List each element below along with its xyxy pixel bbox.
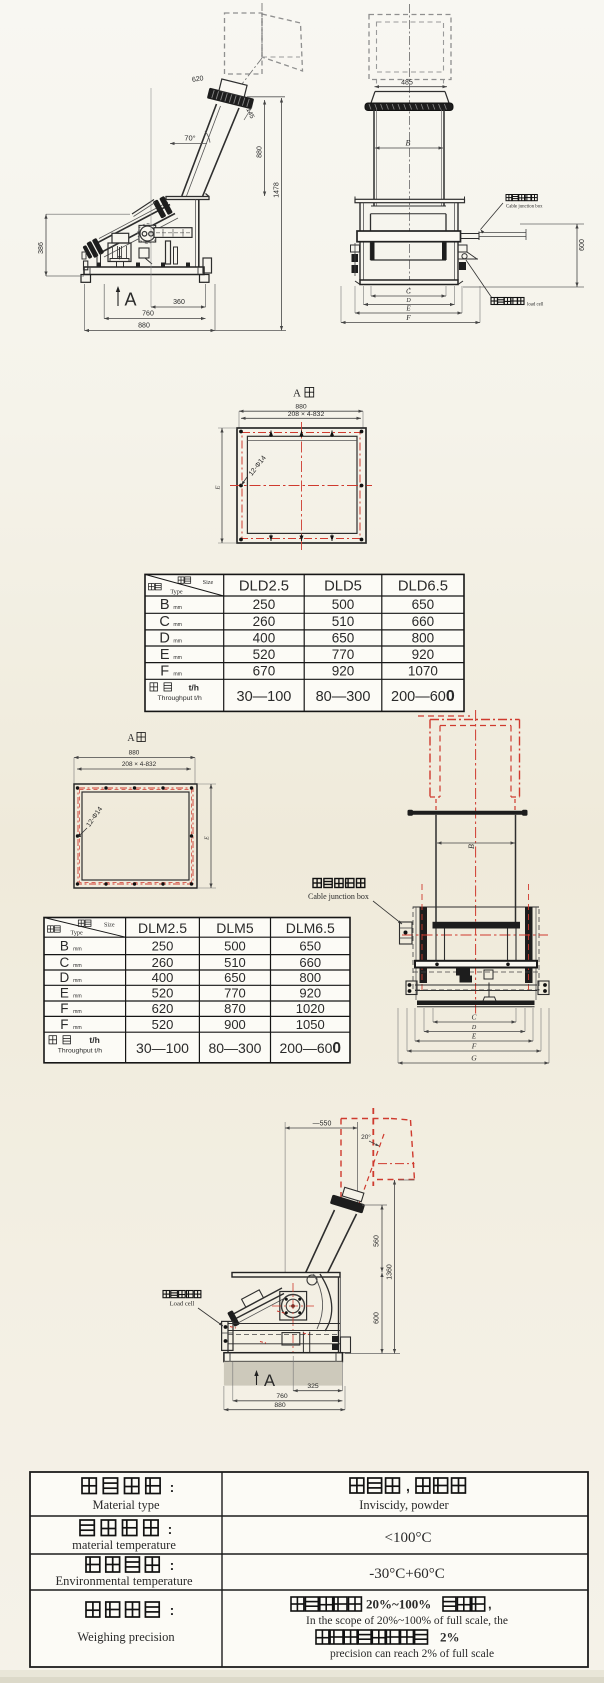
svg-text:DLM6.5: DLM6.5 [286,920,335,936]
svg-text:A: A [127,733,135,744]
svg-text::: : [168,1521,173,1537]
svg-text:mm: mm [173,655,182,661]
svg-text:DLD6.5: DLD6.5 [398,579,448,595]
svg-text:Environmental temperature: Environmental temperature [55,1574,193,1588]
svg-text:880: 880 [138,323,150,330]
svg-text:mm: mm [73,1025,82,1031]
svg-text:260: 260 [152,955,174,970]
svg-text:F: F [160,663,169,679]
svg-text:400: 400 [253,630,276,645]
svg-text:t/h: t/h [89,1035,99,1045]
svg-text:1050: 1050 [296,1017,325,1032]
svg-text:208 × 4-832: 208 × 4-832 [122,761,157,768]
svg-text:Cable junction box: Cable junction box [308,892,369,901]
svg-text:DLD5: DLD5 [324,579,362,595]
svg-text:material temperature: material temperature [72,1538,176,1552]
svg-text:670: 670 [253,663,276,678]
svg-text:800: 800 [412,630,435,645]
svg-text:880: 880 [295,404,307,411]
svg-text:400: 400 [152,970,174,985]
svg-text:650: 650 [224,970,246,985]
svg-text:250: 250 [253,597,276,612]
svg-text:325: 325 [307,1383,319,1390]
svg-text:500: 500 [224,938,246,953]
svg-text:760: 760 [276,1393,288,1400]
svg-text:Weighing precision: Weighing precision [77,1630,175,1644]
svg-text:B: B [406,139,411,148]
svg-text:F: F [471,1042,477,1051]
svg-text:B: B [160,597,170,613]
svg-text:B: B [60,938,69,953]
svg-text:DLM5: DLM5 [216,920,254,936]
svg-text:Throughput t/h: Throughput t/h [158,695,202,702]
svg-text:880: 880 [257,146,264,158]
svg-text:Inviscidy, powder: Inviscidy, powder [359,1498,449,1512]
svg-text::: : [170,1602,175,1618]
svg-text:Cable junction box: Cable junction box [506,205,543,210]
svg-text:G: G [471,1054,477,1063]
svg-text:920: 920 [299,986,321,1001]
svg-text:2%: 2% [440,1630,460,1645]
svg-text:660: 660 [299,955,321,970]
svg-text:D: D [60,970,70,985]
svg-text:mm: mm [73,963,82,969]
svg-text:F: F [60,1001,68,1016]
svg-text:386: 386 [38,242,45,254]
svg-text:-30°C+60°C: -30°C+60°C [369,1566,444,1582]
svg-text:mm: mm [73,1009,82,1015]
svg-text:360: 360 [173,299,185,306]
svg-text:770: 770 [332,647,355,662]
svg-text:DLM2.5: DLM2.5 [138,920,187,936]
svg-text:A: A [293,388,301,400]
svg-text:880: 880 [274,1402,286,1409]
svg-text:DLD2.5: DLD2.5 [239,579,289,595]
svg-text:Material type: Material type [93,1498,160,1512]
svg-text:208 × 4-832: 208 × 4-832 [288,411,325,418]
svg-text:mm: mm [73,994,82,1000]
svg-text:D: D [471,1025,477,1031]
svg-text:650: 650 [412,597,435,612]
svg-text:520: 520 [253,647,276,662]
svg-text:30—100: 30—100 [237,689,292,705]
svg-text:870: 870 [224,1001,246,1016]
svg-text:260: 260 [253,614,276,629]
svg-text:E: E [205,836,211,841]
svg-text:load cell: load cell [527,303,544,308]
svg-text:E: E [160,647,170,663]
svg-text:600: 600 [374,1312,381,1324]
svg-text:30—100: 30—100 [136,1040,189,1056]
svg-text:Type: Type [170,589,183,596]
svg-text:In the scope of 20%~100% of f: In the scope of 20%~100% of full scale, … [306,1615,508,1627]
svg-text:760: 760 [142,311,154,318]
svg-text:Throughput t/h: Throughput t/h [58,1048,102,1055]
svg-text:C: C [159,614,169,630]
svg-text:20°: 20° [361,1133,371,1141]
svg-text:920: 920 [332,663,355,678]
svg-text:—550: —550 [313,1121,332,1128]
svg-text:900: 900 [224,1017,246,1032]
svg-text:1360: 1360 [387,1264,394,1280]
svg-text:B: B [467,844,476,849]
svg-text:500: 500 [332,597,355,612]
svg-text:mm: mm [173,671,182,677]
svg-text:80—300: 80—300 [316,689,371,705]
svg-text:200—600: 200—600 [391,688,455,705]
svg-text:80—300: 80—300 [208,1040,261,1056]
svg-text:20%~100%: 20%~100% [366,1597,431,1612]
svg-text:mm: mm [173,622,182,628]
svg-text:mm: mm [173,638,182,644]
svg-text:250: 250 [152,938,174,953]
svg-text:660: 660 [412,614,435,629]
svg-text:D: D [159,630,169,646]
svg-text:,: , [488,1597,492,1612]
svg-text:F: F [405,313,411,322]
svg-text::: : [170,1479,175,1495]
svg-text:920: 920 [412,647,435,662]
svg-text:E: E [471,1033,477,1041]
svg-text:1070: 1070 [408,663,438,678]
svg-text:770: 770 [224,986,246,1001]
svg-text:650: 650 [332,630,355,645]
svg-text:,: , [406,1478,410,1494]
svg-text:<100°C: <100°C [385,1530,432,1546]
svg-text:t/h: t/h [189,682,199,692]
svg-text:C: C [60,955,70,970]
svg-text:70°: 70° [184,134,195,143]
svg-text:560: 560 [374,1235,381,1247]
svg-text:E: E [60,986,69,1001]
svg-text:520: 520 [152,1017,174,1032]
svg-text:Size: Size [104,921,115,928]
svg-text:D: D [405,298,411,304]
svg-text:620: 620 [152,1001,174,1016]
svg-text::: : [170,1557,175,1573]
svg-text:mm: mm [73,946,82,952]
svg-text:E: E [215,485,222,490]
svg-text:F: F [60,1017,68,1032]
svg-text:200—600: 200—600 [279,1040,341,1057]
svg-text:1020: 1020 [296,1001,325,1016]
svg-text:precision can reach 2% of: precision can reach 2% of full scale [330,1648,494,1660]
svg-text:Size: Size [203,579,214,586]
svg-text:510: 510 [224,955,246,970]
svg-text:880: 880 [129,750,140,757]
svg-text:800: 800 [299,970,321,985]
svg-text:650: 650 [299,938,321,953]
svg-text:600: 600 [579,239,586,251]
svg-text:520: 520 [152,986,174,1001]
svg-text:1478: 1478 [274,182,281,198]
svg-text:mm: mm [73,978,82,984]
svg-text:mm: mm [173,605,182,611]
svg-text:Load cell: Load cell [170,1301,195,1308]
svg-text:510: 510 [332,614,355,629]
svg-text:485: 485 [401,80,413,87]
svg-text:Type: Type [70,930,83,937]
svg-text:A: A [124,290,136,310]
svg-text:E: E [405,305,411,313]
svg-text:A: A [264,1372,275,1390]
